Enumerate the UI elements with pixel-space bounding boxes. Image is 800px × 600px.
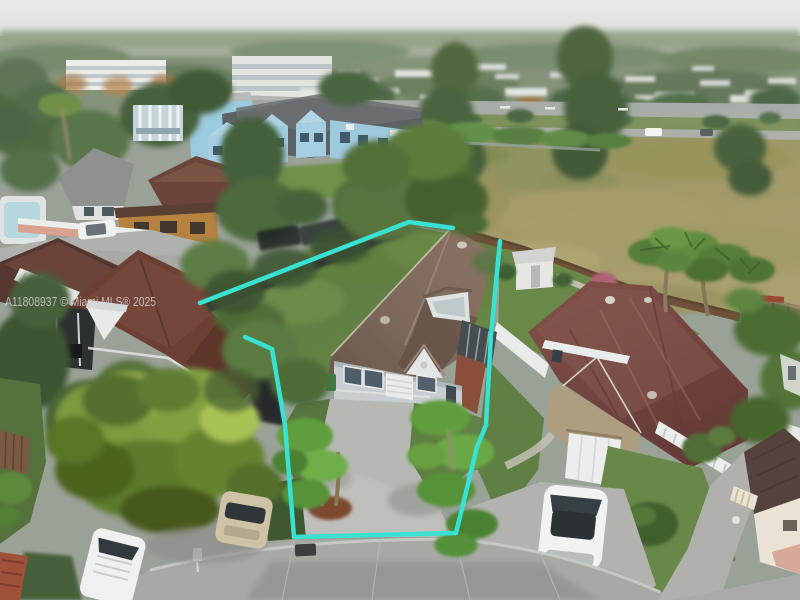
svg-text:A11808937 © Miami MLS® 2025: A11808937 © Miami MLS® 2025 <box>5 294 156 309</box>
